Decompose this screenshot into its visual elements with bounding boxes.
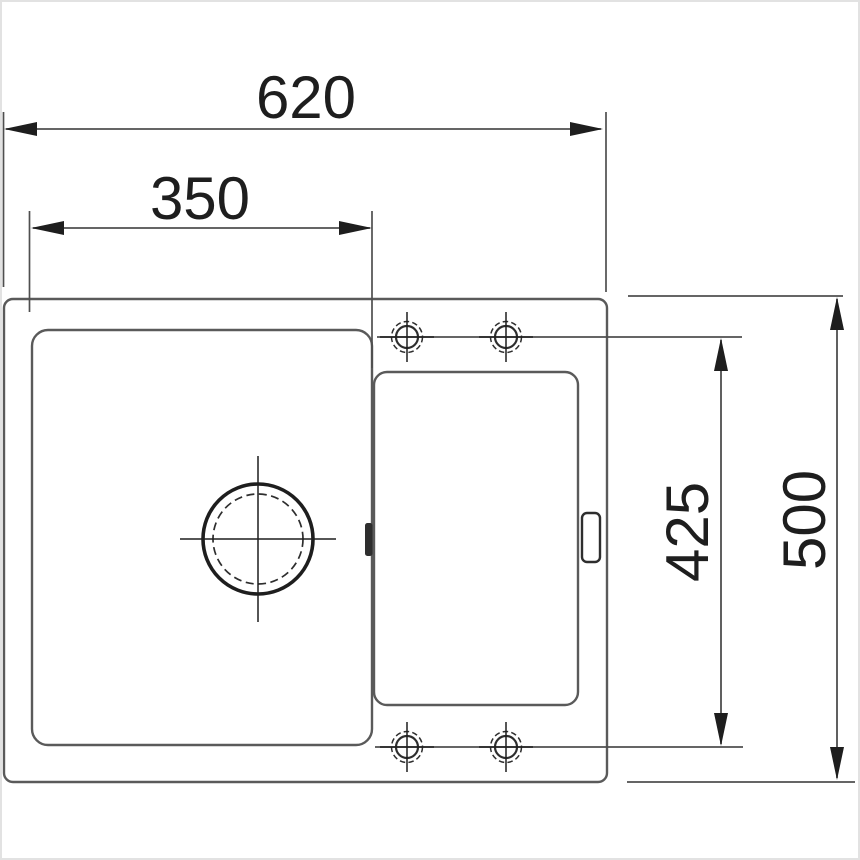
drainboard bbox=[374, 372, 578, 705]
tap-hole-bottom-left bbox=[380, 722, 434, 772]
tap-hole-bottom-right bbox=[479, 722, 533, 772]
overflow-slot bbox=[582, 513, 600, 562]
drawing-canvas: 620 350 425 500 bbox=[0, 0, 860, 860]
dim-label-overall-width: 620 bbox=[256, 64, 356, 131]
arrowhead-left bbox=[4, 122, 37, 136]
tap-hole-top-right bbox=[479, 312, 533, 362]
arrowhead-right bbox=[339, 221, 372, 235]
arrowhead-bottom bbox=[830, 747, 844, 780]
dim-label-tap-hole-span: 425 bbox=[654, 482, 721, 582]
dim-tap-hole-span: 425 bbox=[654, 338, 728, 746]
bowl-overflow-mark bbox=[365, 523, 373, 556]
dim-bowl-width: 350 bbox=[30, 165, 373, 368]
arrowhead-top bbox=[830, 297, 844, 330]
tap-hole-top-left bbox=[380, 312, 434, 362]
dim-label-overall-depth: 500 bbox=[771, 470, 838, 570]
arrowhead-bottom bbox=[714, 713, 728, 746]
drain-hole bbox=[180, 456, 336, 622]
arrowhead-right bbox=[570, 122, 603, 136]
arrowhead-top bbox=[714, 338, 728, 371]
sink-technical-drawing: 620 350 425 500 bbox=[0, 0, 860, 860]
dim-overall-width: 620 bbox=[4, 64, 607, 292]
arrowhead-left bbox=[31, 221, 64, 235]
dim-label-bowl-width: 350 bbox=[150, 165, 250, 232]
